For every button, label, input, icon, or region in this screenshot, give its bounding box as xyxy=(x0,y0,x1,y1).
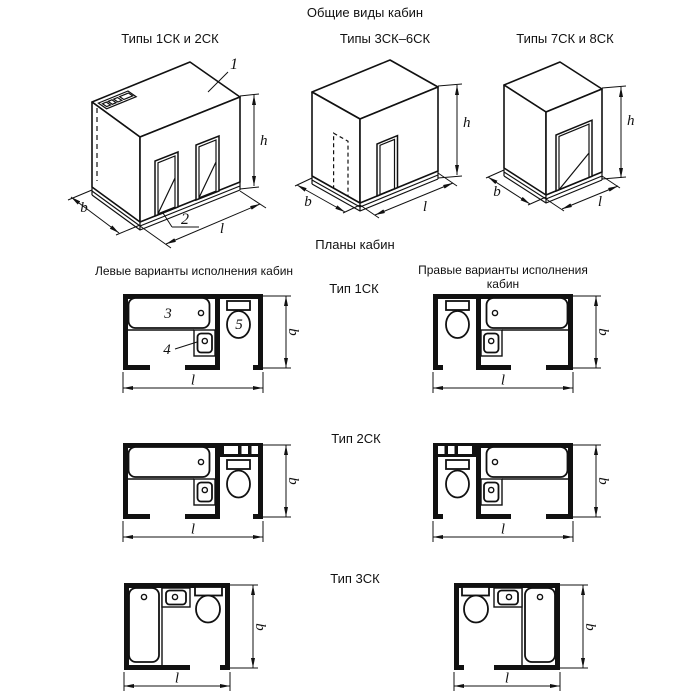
washbasin xyxy=(194,330,215,356)
vent-block xyxy=(220,443,263,457)
dim-label-b: b xyxy=(595,328,611,336)
toilet xyxy=(227,460,250,498)
dim-label-b: b xyxy=(80,200,88,216)
dim-label-b: b xyxy=(582,623,598,631)
door-opening-1 xyxy=(155,152,178,216)
dim-label-l: l xyxy=(505,671,509,687)
iso-view-types-7sk-8sk: h b l xyxy=(480,55,660,240)
dim-label-b: b xyxy=(493,184,501,200)
dim-label-b: b xyxy=(304,194,312,210)
cabin-plan-3sk-mirrored xyxy=(454,583,560,670)
dimension-b: b xyxy=(263,296,301,368)
plan-1sk-left: 3 4 5 b l xyxy=(115,288,305,400)
dimension-l: l xyxy=(433,372,573,393)
dim-label-h: h xyxy=(627,113,635,129)
row-label-type-2sk: Тип 2СК xyxy=(306,432,406,446)
dimension-b: b xyxy=(573,296,611,368)
plan-3sk-left: b l xyxy=(115,578,275,696)
cabin-box xyxy=(504,62,602,203)
iso-view-types-3sk-6sk: h b l xyxy=(295,55,480,250)
dimension-l: l xyxy=(124,671,230,692)
iso-label-types-3sk-6sk: Типы 3СК–6СК xyxy=(310,32,460,46)
dimension-h: h xyxy=(602,86,635,179)
dimension-l: l xyxy=(123,372,263,393)
plan-1sk-right: b l xyxy=(425,288,615,400)
dim-label-l: l xyxy=(501,522,505,538)
dim-label-l: l xyxy=(501,373,505,389)
cabin-plan-2sk xyxy=(123,443,263,519)
callout-1-number: 1 xyxy=(230,56,238,73)
plan-2sk-right: b l xyxy=(425,437,615,549)
dim-label-l: l xyxy=(598,194,602,210)
dim-label-b: b xyxy=(285,328,301,336)
dimension-b: b xyxy=(560,585,598,668)
callout-3-bathtub: 3 xyxy=(163,306,172,322)
callout-2-number: 2 xyxy=(181,211,189,228)
callout-2: 2 xyxy=(163,211,199,228)
cabin-plan-1sk-mirrored xyxy=(433,294,573,370)
left-column-header: Левые варианты исполнения кабин xyxy=(94,264,294,278)
dim-label-l: l xyxy=(220,221,224,237)
dimension-h: h xyxy=(240,94,268,189)
dim-label-h: h xyxy=(463,115,471,131)
dim-label-l: l xyxy=(191,522,195,538)
row-label-type-3sk: Тип 3СК xyxy=(305,572,405,586)
dimension-b: b xyxy=(263,445,301,517)
iso-label-types-7sk-8sk: Типы 7СК и 8СК xyxy=(490,32,640,46)
iso-label-types-1sk-2sk: Типы 1СК и 2СК xyxy=(95,32,245,46)
cabin-box xyxy=(312,60,438,211)
cabin-plan-2sk-mirrored xyxy=(433,443,573,519)
dim-label-b: b xyxy=(252,623,268,631)
callout-5-toilet: 5 xyxy=(235,317,243,333)
washbasin xyxy=(162,588,190,607)
dimension-b: b xyxy=(230,585,268,668)
bathtub xyxy=(129,588,159,662)
dim-label-l: l xyxy=(423,199,427,215)
dimension-l: l xyxy=(433,521,573,542)
toilet xyxy=(195,587,222,623)
dim-label-h: h xyxy=(260,133,268,149)
cabin-plan-3sk xyxy=(124,583,230,670)
row-label-type-1sk: Тип 1СК xyxy=(304,282,404,296)
callout-4-washbasin: 4 xyxy=(163,342,197,358)
drawing-sheet: Общие виды кабин Типы 1СК и 2СК Типы 3СК… xyxy=(0,0,700,700)
iso-view-types-1sk-2sk: 1 2 h b l xyxy=(60,50,295,255)
dimension-l: l xyxy=(454,671,560,692)
dimension-l: l xyxy=(123,521,263,542)
plan-3sk-right: b l xyxy=(445,578,605,696)
door-opening xyxy=(377,136,398,196)
dim-label-b: b xyxy=(285,477,301,485)
callout-4-number: 4 xyxy=(163,342,171,358)
dim-label-l: l xyxy=(175,671,179,687)
plan-2sk-left: b l xyxy=(115,437,305,549)
dimension-b: b xyxy=(573,445,611,517)
right-column-header: Правые варианты исполнения кабин xyxy=(403,263,603,291)
dim-label-b: b xyxy=(595,477,611,485)
cabin-box xyxy=(92,62,240,230)
dimension-h: h xyxy=(438,84,471,178)
main-title: Общие виды кабин xyxy=(265,6,465,20)
dim-label-l: l xyxy=(191,373,195,389)
door-opening-2 xyxy=(196,136,219,200)
